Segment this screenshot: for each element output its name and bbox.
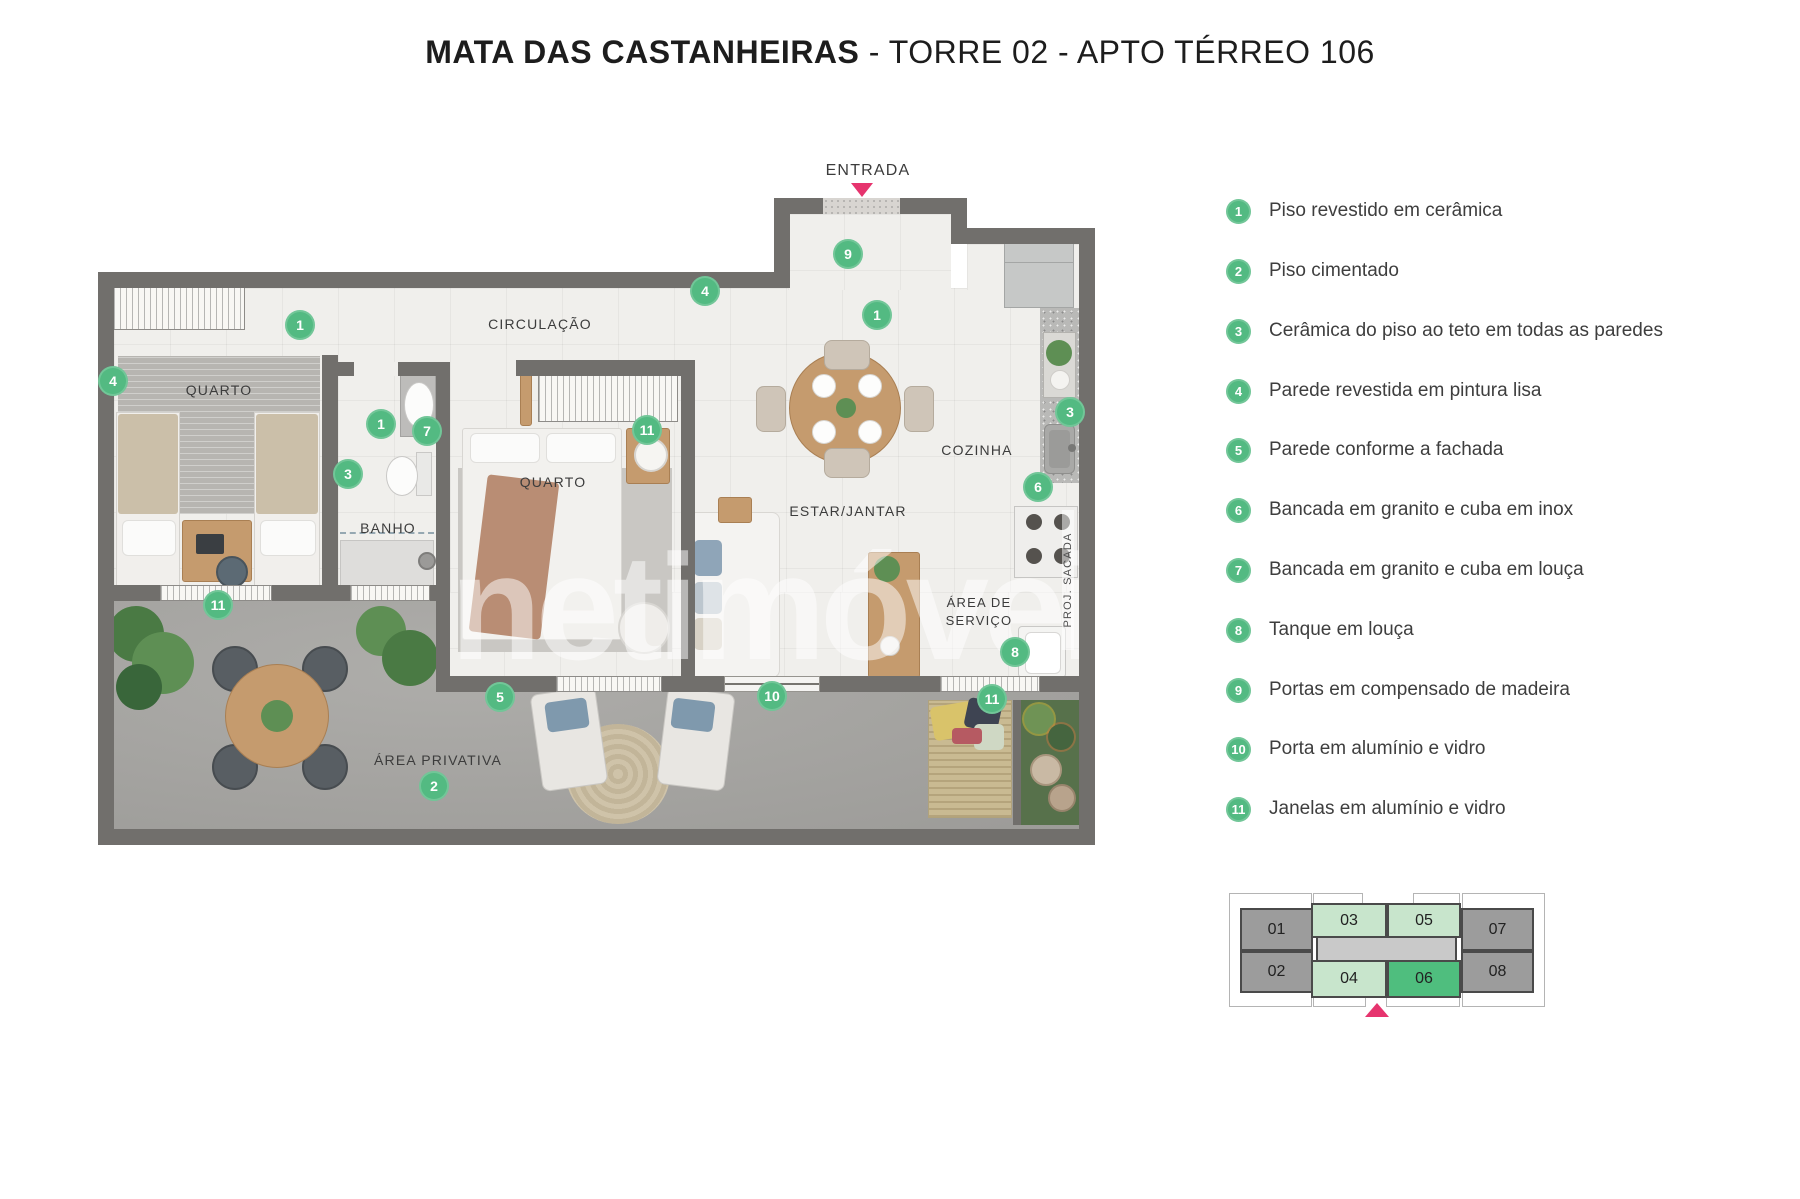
legend-label-9: Portas em compensado de madeira — [1269, 679, 1570, 701]
legend-label-2: Piso cimentado — [1269, 260, 1399, 282]
legend-item-9: 9 Portas em compensado de madeira — [1226, 676, 1570, 704]
label-balcony-projection: PROJ. SACADA — [1062, 510, 1074, 650]
keyplan-unit-08: 08 — [1461, 951, 1534, 993]
bedroom1-bed-right-pillow — [260, 520, 316, 556]
entrance-label: ENTRADA — [808, 162, 928, 180]
legend-label-4: Parede revestida em pintura lisa — [1269, 380, 1541, 402]
console-box — [718, 497, 752, 523]
bathroom-toilet-bowl — [386, 456, 418, 496]
terrace-table-plant — [261, 700, 293, 732]
page-title: MATA DAS CASTANHEIRAS - TORRE 02 - APTO … — [0, 34, 1800, 71]
legend-item-5: 5 Parede conforme a fachada — [1226, 436, 1504, 464]
label-private-area: ÁREA PRIVATIVA — [358, 752, 518, 768]
legend-dot-2: 2 — [1226, 259, 1251, 284]
legend-item-3: 3 Cerâmica do piso ao teto em todas as p… — [1226, 317, 1663, 345]
sideboard-plant — [874, 556, 900, 582]
garden-pot-2 — [1048, 784, 1076, 812]
fridge-divider — [1004, 262, 1074, 263]
legend-label-1: Piso revestido em cerâmica — [1269, 200, 1502, 222]
stove-burner-1 — [1026, 514, 1042, 530]
keyplan-entrance-arrow — [1365, 1003, 1389, 1017]
wall-kitchen-top — [951, 228, 1095, 244]
bedroom2-window — [556, 676, 662, 692]
bathroom-toilet-tank — [416, 452, 432, 496]
bedroom2-pillow-right — [546, 433, 616, 463]
page-title-unit: - TORRE 02 - APTO TÉRREO 106 — [859, 34, 1374, 70]
stove-burner-3 — [1026, 548, 1042, 564]
garden-flowers-2 — [1048, 724, 1074, 750]
wall-bathroom-right — [436, 362, 450, 692]
wall-bottom — [98, 829, 1095, 845]
marker-8: 8 — [1000, 637, 1030, 667]
legend-dot-8: 8 — [1226, 618, 1251, 643]
dining-plate-3 — [812, 420, 836, 444]
dining-plate-1 — [812, 374, 836, 398]
bedroom1-laptop — [196, 534, 224, 554]
keyplan-unit-06-highlighted: 06 — [1387, 960, 1461, 998]
keyplan-unit-02: 02 — [1240, 951, 1313, 993]
bedroom1-wardrobe — [107, 281, 245, 330]
kitchen-faucet — [1068, 444, 1076, 452]
bedroom1-bed-right-duvet — [256, 414, 318, 514]
keyplan-unit-01: 01 — [1240, 908, 1313, 951]
legend-label-5: Parede conforme a fachada — [1269, 439, 1504, 461]
dining-centerpiece — [836, 398, 856, 418]
dining-chair-west — [756, 386, 786, 432]
legend-dot-11: 11 — [1226, 797, 1251, 822]
rug-pillow-red — [952, 728, 982, 744]
label-bathroom: BANHO — [343, 520, 433, 536]
counter-plant — [1046, 340, 1072, 366]
keyplan-unit-03: 03 — [1311, 903, 1387, 938]
terrace-plant-b2 — [382, 630, 438, 686]
dining-plate-4 — [858, 420, 882, 444]
sofa-pillow-light — [694, 582, 722, 614]
floor-plan-page: MATA DAS CASTANHEIRAS - TORRE 02 - APTO … — [0, 0, 1800, 1199]
marker-3-bathroom: 3 — [333, 459, 363, 489]
marker-5: 5 — [485, 682, 515, 712]
legend-dot-7: 7 — [1226, 558, 1251, 583]
counter-bottles — [1050, 370, 1070, 390]
garden-pot-1 — [1030, 754, 1062, 786]
dining-chair-north — [824, 340, 870, 370]
lounge-chair-1-pillow — [544, 697, 590, 733]
sideboard-vase — [880, 636, 900, 656]
entrance-arrow — [851, 183, 873, 197]
legend-dot-9: 9 — [1226, 678, 1251, 703]
bathroom-door-opening — [354, 362, 398, 376]
legend-label-3: Cerâmica do piso ao teto em todas as par… — [1269, 320, 1663, 342]
page-title-project: MATA DAS CASTANHEIRAS — [425, 34, 859, 70]
label-bedroom1: QUARTO — [169, 382, 269, 398]
bedroom1-bed-left-pillow — [122, 520, 176, 556]
bedroom2-pillow-left — [470, 433, 540, 463]
wall-right — [1079, 228, 1095, 845]
legend-label-6: Bancada em granito e cuba em inox — [1269, 499, 1573, 521]
bedroom1-bed-left-duvet — [118, 414, 178, 514]
bedroom1-desk-chair — [216, 556, 248, 588]
label-kitchen: COZINHA — [922, 442, 1032, 458]
dining-chair-east — [904, 386, 934, 432]
legend-item-1: 1 Piso revestido em cerâmica — [1226, 197, 1502, 225]
legend-dot-5: 5 — [1226, 438, 1251, 463]
garden-divider-wall — [1013, 700, 1021, 825]
bathroom-shower-head — [418, 552, 436, 570]
wall-top-left — [98, 272, 790, 288]
marker-11-bedroom2: 11 — [632, 415, 662, 445]
wall-bedroom2-top — [516, 360, 695, 376]
legend-item-2: 2 Piso cimentado — [1226, 257, 1399, 285]
marker-1-bedroom1: 1 — [285, 310, 315, 340]
keyplan-unit-05: 05 — [1387, 903, 1461, 938]
entry-door-threshold — [823, 198, 900, 214]
legend-label-7: Bancada em granito e cuba em louça — [1269, 559, 1584, 581]
marker-2: 2 — [419, 771, 449, 801]
label-bedroom2: QUARTO — [503, 474, 603, 490]
label-service-line1: ÁREA DE — [929, 594, 1029, 612]
lounge-chair-2-pillow — [670, 698, 715, 733]
legend-item-6: 6 Bancada em granito e cuba em inox — [1226, 496, 1573, 524]
label-living: ESTAR/JANTAR — [778, 503, 918, 519]
marker-10: 10 — [757, 681, 787, 711]
sofa-pillow-blue — [694, 540, 722, 576]
wall-bedroom2-right — [681, 360, 695, 692]
legend-label-8: Tanque em louça — [1269, 619, 1414, 641]
legend-dot-3: 3 — [1226, 319, 1251, 344]
service-tank-basin — [1025, 632, 1061, 674]
marker-11-service: 11 — [977, 684, 1007, 714]
marker-4-left: 4 — [98, 366, 128, 396]
marker-1-living: 1 — [862, 300, 892, 330]
legend-label-10: Porta em alumínio e vidro — [1269, 738, 1486, 760]
marker-6: 6 — [1023, 472, 1053, 502]
keyplan-unit-07: 07 — [1461, 908, 1534, 951]
label-service: ÁREA DE SERVIÇO — [929, 594, 1029, 629]
keyplan-core — [1316, 936, 1457, 962]
label-service-line2: SERVIÇO — [929, 612, 1029, 630]
legend-item-7: 7 Bancada em granito e cuba em louça — [1226, 556, 1584, 584]
keyplan-unit-04: 04 — [1311, 960, 1387, 998]
legend-dot-6: 6 — [1226, 498, 1251, 523]
sofa-pillow-sand — [694, 618, 722, 650]
kitchen-sink-basin — [1049, 430, 1070, 468]
fridge — [1004, 240, 1074, 308]
marker-7: 7 — [412, 416, 442, 446]
dining-chair-south — [824, 448, 870, 478]
terrace-plant-a3 — [116, 664, 162, 710]
bathroom-window — [350, 585, 430, 601]
marker-1-bathroom: 1 — [366, 409, 396, 439]
marker-9: 9 — [833, 239, 863, 269]
legend-item-11: 11 Janelas em alumínio e vidro — [1226, 795, 1506, 823]
marker-3-kitchen: 3 — [1055, 397, 1085, 427]
legend-label-11: Janelas em alumínio e vidro — [1269, 798, 1506, 820]
legend-dot-1: 1 — [1226, 199, 1251, 224]
legend-item-8: 8 Tanque em louça — [1226, 616, 1414, 644]
entry-floor — [788, 214, 951, 290]
marker-11-bedroom1: 11 — [203, 590, 233, 620]
marker-4-top: 4 — [690, 276, 720, 306]
legend-dot-10: 10 — [1226, 737, 1251, 762]
legend-item-4: 4 Parede revestida em pintura lisa — [1226, 377, 1541, 405]
label-circulation: CIRCULAÇÃO — [470, 316, 610, 332]
dining-plate-2 — [858, 374, 882, 398]
wall-left — [98, 272, 114, 845]
side-table-lamp — [618, 602, 670, 654]
legend-dot-4: 4 — [1226, 379, 1251, 404]
legend-item-10: 10 Porta em alumínio e vidro — [1226, 735, 1486, 763]
